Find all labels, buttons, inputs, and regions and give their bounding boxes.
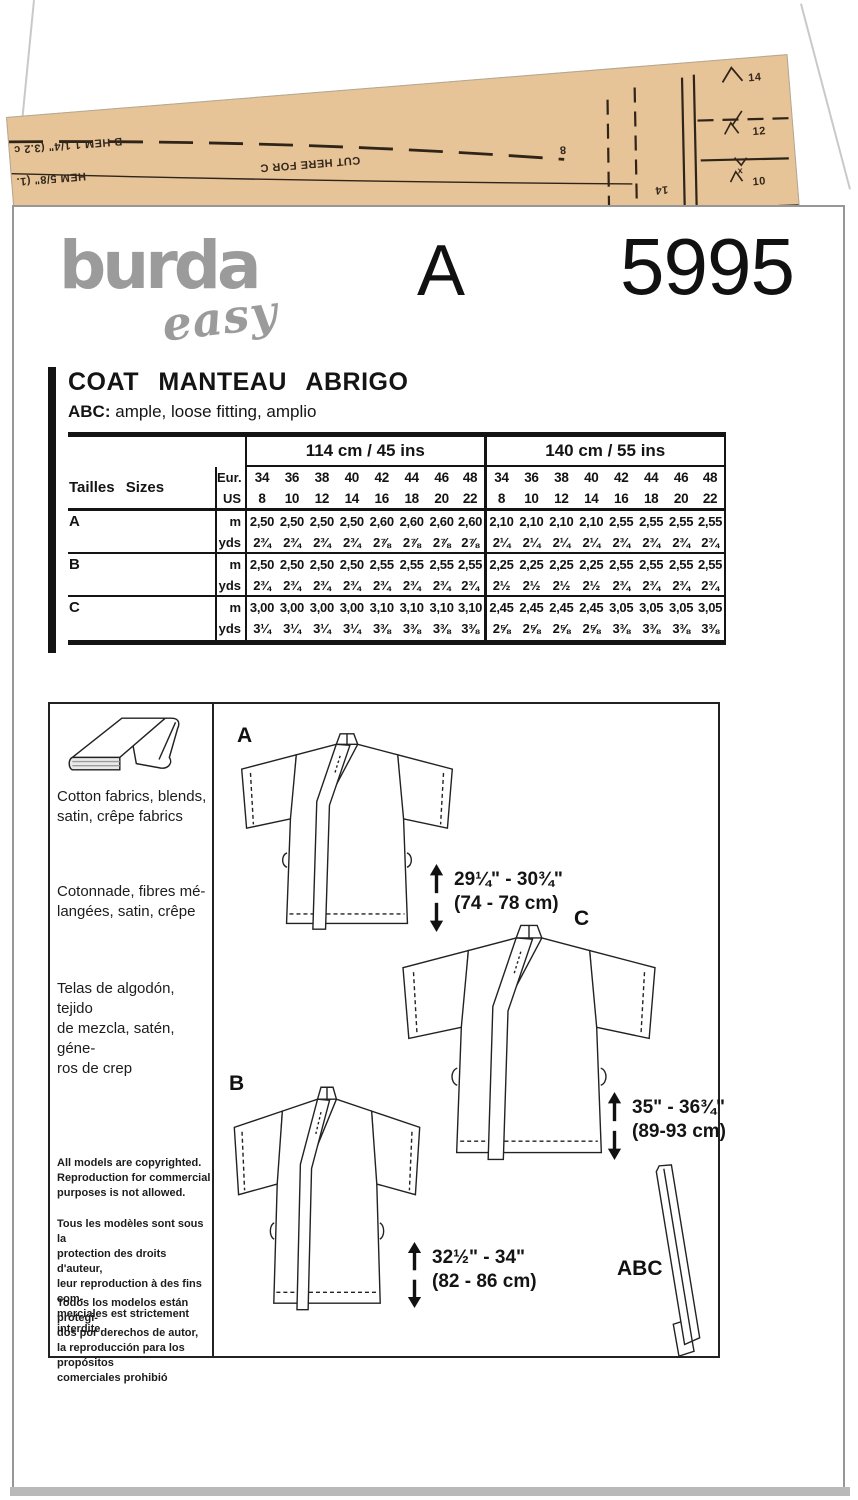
cell-line: 20: [427, 488, 457, 508]
cell-line: 44: [397, 467, 427, 488]
cell-line: 34: [487, 467, 517, 488]
tissue-notch-10: 10: [752, 175, 766, 188]
garment-title: COAT MANTEAU ABRIGO: [68, 368, 408, 397]
fit-views-label: ABC:: [68, 402, 111, 421]
cell-line: 12: [307, 488, 337, 508]
cell-line: 3⅜: [457, 618, 484, 639]
cell-line: 3¼: [277, 618, 307, 639]
yardage-cell: 3,003¼: [247, 597, 277, 640]
yardage-cell: 2,552¾: [606, 554, 636, 595]
size-cell: 4418: [397, 467, 427, 508]
yardage-cell: 2,452⅝: [516, 597, 546, 640]
envelope-front: burda easy A 5995 COAT MANTEAU ABRIGO AB…: [12, 205, 845, 1487]
cell-line: 3,00: [307, 597, 337, 618]
cell-line: 2,10: [487, 511, 517, 532]
cell-line: 2,50: [277, 511, 307, 532]
cell-line: 2¾: [606, 575, 636, 595]
yardage-cell: 2,102¼: [487, 511, 517, 552]
cell-line: m: [217, 511, 241, 532]
cell-line: 2⅝: [546, 618, 576, 639]
cell-line: 2,10: [516, 511, 546, 532]
yardage-cell: 3,053⅜: [636, 597, 666, 640]
cell-line: 2¾: [666, 575, 696, 595]
cell-line: 18: [397, 488, 427, 508]
cell-line: 3¼: [307, 618, 337, 639]
cell-line: 3⅜: [397, 618, 427, 639]
cell-line: 2,55: [696, 511, 724, 532]
cell-line: 22: [457, 488, 484, 508]
size-label-cell: Tailles Sizes Tallas: [68, 467, 217, 508]
belt-line-drawing: [645, 1162, 711, 1360]
table-row: 114 cm / 45 ins140 cm / 55 ins: [68, 437, 726, 467]
table-corner-cell: [68, 437, 247, 467]
cell-line: 3¼: [337, 618, 367, 639]
copyright-text-es: Todos los modelos están protegi- dos por…: [57, 1296, 211, 1386]
table-row: Bmyds2,502¾2,502¾2,502¾2,502¾2,552¾2,552…: [68, 554, 726, 597]
cell-line: 2¾: [337, 575, 367, 595]
cell-line: 2,55: [457, 554, 484, 575]
cell-line: 2¾: [247, 575, 277, 595]
tissue-size-14-rotated: 14: [654, 183, 668, 196]
yardage-cell: 2,552¾: [696, 554, 726, 595]
cell-line: 2¾: [457, 575, 484, 595]
yardage-cell: 3,003¼: [337, 597, 367, 640]
tissue-notch-14: 14: [748, 71, 762, 84]
cell-line: yds: [217, 532, 241, 552]
cell-line: 2¾: [367, 575, 397, 595]
cell-line: 2,50: [307, 511, 337, 532]
size-cell: 4216: [606, 467, 636, 508]
width-header-114: 114 cm / 45 ins: [247, 437, 487, 467]
cell-line: 3,10: [397, 597, 427, 618]
measure-cm-c: (89-93 cm): [632, 1120, 726, 1144]
yardage-cell: 2,552¾: [636, 511, 666, 552]
table-row: Amyds2,502¾2,502¾2,502¾2,502¾2,602⅞2,602…: [68, 511, 726, 554]
cell-line: 36: [277, 467, 307, 488]
cell-line: 2,55: [636, 511, 666, 532]
cell-line: 2,60: [397, 511, 427, 532]
yardage-cell: 2,552¾: [367, 554, 397, 595]
cell-line: 2,25: [576, 554, 606, 575]
yardage-cell: 3,003¼: [277, 597, 307, 640]
yardage-cell: 3,053⅜: [666, 597, 696, 640]
cell-line: 34: [247, 467, 277, 488]
view-label-cell: B: [68, 554, 217, 595]
cell-line: 2¾: [636, 575, 666, 595]
view-label-cell: A: [68, 511, 217, 552]
double-arrow-icon: [406, 1242, 423, 1308]
cell-line: 2,45: [516, 597, 546, 618]
copyright-text-en: All models are copyrighted. Reproduction…: [57, 1156, 211, 1201]
yardage-cell: 2,552¾: [666, 511, 696, 552]
cell-line: 10: [277, 488, 307, 508]
tissue-size-8: 8: [559, 143, 567, 155]
cell-line: 8: [487, 488, 517, 508]
cell-line: 42: [606, 467, 636, 488]
cell-line: 2,55: [696, 554, 724, 575]
fabric-text-fr: Cotonnade, fibres mé- langées, satin, cr…: [57, 882, 209, 922]
tissue-notch-12: 12: [752, 125, 766, 138]
measure-inches-a: 29¼" - 30¾": [454, 868, 563, 892]
yardage-cell: 2,552¾: [457, 554, 487, 595]
cell-line: 2,45: [487, 597, 517, 618]
cell-line: 2,50: [247, 511, 277, 532]
cell-line: 3,10: [457, 597, 484, 618]
yardage-cell: 2,552¾: [606, 511, 636, 552]
yardage-cell: 2,502¾: [337, 554, 367, 595]
yardage-cell: 2,102¼: [546, 511, 576, 552]
size-cell: 4014: [576, 467, 606, 508]
size-cell: 3812: [307, 467, 337, 508]
cell-line: 3⅜: [367, 618, 397, 639]
length-measure-c: 35" - 36¾" (89-93 cm): [606, 1092, 726, 1160]
tissue-x-mark: x: [737, 165, 743, 175]
cell-line: 3,10: [367, 597, 397, 618]
unit-cell: myds: [217, 597, 247, 640]
cell-line: 38: [546, 467, 576, 488]
envelope-flap-edge-right: [800, 3, 851, 189]
cell-line: 3⅜: [696, 618, 724, 639]
cell-line: 2¼: [546, 532, 576, 552]
cell-line: 3⅜: [636, 618, 666, 639]
cell-line: 2¼: [487, 532, 517, 552]
cell-line: 2,55: [666, 511, 696, 532]
cell-line: 2⅝: [487, 618, 517, 639]
cell-line: yds: [217, 618, 241, 639]
size-cell: 4418: [636, 467, 666, 508]
yardage-cell: 3,103⅜: [367, 597, 397, 640]
illustration-box: Cotton fabrics, blends, satin, crêpe fab…: [48, 702, 720, 1358]
measure-text-a: 29¼" - 30¾" (74 - 78 cm): [454, 864, 563, 916]
size-cell: 3610: [516, 467, 546, 508]
cell-line: 14: [337, 488, 367, 508]
cell-line: 48: [457, 467, 484, 488]
cell-line: 2½: [576, 575, 606, 595]
cell-line: 2¾: [696, 575, 724, 595]
yardage-cell: 2,602⅞: [457, 511, 487, 552]
yardage-cell: 2,552¾: [427, 554, 457, 595]
cell-line: m: [217, 554, 241, 575]
cell-line: 3,10: [427, 597, 457, 618]
measure-inches-c: 35" - 36¾": [632, 1096, 726, 1120]
title-accent-bar: [48, 367, 56, 653]
cell-line: 3,05: [696, 597, 724, 618]
yardage-cell: 2,252½: [546, 554, 576, 595]
cell-line: 2,50: [337, 554, 367, 575]
yardage-cell: 2,502¾: [277, 554, 307, 595]
cell-line: 2,55: [427, 554, 457, 575]
cell-line: 3,05: [606, 597, 636, 618]
yardage-cell: 3,103⅜: [457, 597, 487, 640]
cell-line: 2,25: [546, 554, 576, 575]
size-cell: 3610: [277, 467, 307, 508]
cell-line: 2,25: [487, 554, 517, 575]
size-cell: 3812: [546, 467, 576, 508]
cell-line: 42: [367, 467, 397, 488]
yardage-cell: 2,602⅞: [427, 511, 457, 552]
yardage-cell: 2,552¾: [636, 554, 666, 595]
yardage-cell: 3,103⅜: [397, 597, 427, 640]
cell-line: 22: [696, 488, 724, 508]
cell-line: 2¾: [337, 532, 367, 552]
cell-line: 2,50: [307, 554, 337, 575]
cell-line: Eur.: [217, 467, 241, 488]
cell-line: 46: [427, 467, 457, 488]
fabric-text-es: Telas de algodón, tejido de mezcla, saté…: [57, 979, 209, 1079]
cell-line: 2¼: [516, 532, 546, 552]
yardage-table: 114 cm / 45 ins140 cm / 55 insTailles Si…: [68, 432, 726, 645]
cell-line: 10: [516, 488, 546, 508]
cell-line: 3,05: [666, 597, 696, 618]
cell-line: 3,00: [337, 597, 367, 618]
measure-text-b: 32½" - 34" (82 - 86 cm): [432, 1242, 537, 1294]
measure-cm-b: (82 - 86 cm): [432, 1270, 537, 1294]
cell-line: 2,55: [367, 554, 397, 575]
cell-line: 2,50: [277, 554, 307, 575]
cell-line: 2,55: [606, 511, 636, 532]
measure-inches-b: 32½" - 34": [432, 1246, 537, 1270]
view-letter: A: [417, 235, 465, 307]
cell-line: 2,10: [576, 511, 606, 532]
pattern-number: 5995: [594, 227, 794, 307]
fabric-text-en: Cotton fabrics, blends, satin, crêpe fab…: [57, 787, 209, 827]
cell-line: 3,00: [247, 597, 277, 618]
yardage-cell: 2,502¾: [277, 511, 307, 552]
size-cell: 4822: [696, 467, 726, 508]
yardage-cell: 2,252½: [516, 554, 546, 595]
cell-line: 2¾: [666, 532, 696, 552]
cell-line: 20: [666, 488, 696, 508]
yardage-cell: 2,552¾: [397, 554, 427, 595]
yardage-cell: 2,502¾: [247, 511, 277, 552]
coat-drawing-view-b: [224, 1084, 430, 1314]
yardage-cell: 2,502¾: [337, 511, 367, 552]
yardage-cell: 2,452⅝: [546, 597, 576, 640]
yardage-cell: 3,003¼: [307, 597, 337, 640]
cell-line: 2,10: [546, 511, 576, 532]
cell-line: 2⅞: [367, 532, 397, 552]
cell-line: 44: [636, 467, 666, 488]
cell-line: 2½: [487, 575, 517, 595]
double-arrow-icon: [606, 1092, 623, 1160]
envelope-bottom-shadow: [10, 1487, 850, 1496]
cell-line: 2,55: [397, 554, 427, 575]
cell-line: 2¼: [576, 532, 606, 552]
cell-line: 2⅞: [457, 532, 484, 552]
yardage-cell: 2,552¾: [666, 554, 696, 595]
length-measure-b: 32½" - 34" (82 - 86 cm): [406, 1242, 537, 1308]
cell-line: 40: [337, 467, 367, 488]
measure-cm-a: (74 - 78 cm): [454, 892, 563, 916]
view-label-cell: C: [68, 597, 217, 640]
yardage-cell: 2,602⅞: [397, 511, 427, 552]
yardage-cell: 2,552¾: [696, 511, 726, 552]
cell-line: 2¾: [247, 532, 277, 552]
unit-header-cell: Eur.US: [217, 467, 247, 508]
unit-cell: myds: [217, 554, 247, 595]
cell-line: 2,45: [576, 597, 606, 618]
yardage-cell: 2,102¼: [576, 511, 606, 552]
fit-description: ABC: ample, loose fitting, amplio: [68, 402, 317, 422]
yardage-cell: 2,252½: [576, 554, 606, 595]
cell-line: 38: [307, 467, 337, 488]
unit-cell: myds: [217, 511, 247, 552]
yardage-cell: 2,102¼: [516, 511, 546, 552]
yardage-cell: 2,502¾: [307, 511, 337, 552]
size-cell: 348: [247, 467, 277, 508]
cell-line: 2¾: [307, 532, 337, 552]
cell-line: 2,45: [546, 597, 576, 618]
measure-text-c: 35" - 36¾" (89-93 cm): [632, 1092, 726, 1144]
cell-line: 2⅝: [516, 618, 546, 639]
fabric-panel: Cotton fabrics, blends, satin, crêpe fab…: [50, 704, 214, 1356]
cell-line: 2,55: [636, 554, 666, 575]
cell-line: 2⅞: [397, 532, 427, 552]
yardage-cell: 2,252½: [487, 554, 517, 595]
yardage-cell: 3,053⅜: [696, 597, 726, 640]
cell-line: 18: [636, 488, 666, 508]
cell-line: 3,05: [636, 597, 666, 618]
cell-line: 2,50: [247, 554, 277, 575]
cell-line: 2,60: [367, 511, 397, 532]
cell-line: 40: [576, 467, 606, 488]
yardage-cell: 2,452⅝: [487, 597, 517, 640]
cell-line: 2,50: [337, 511, 367, 532]
size-cell: 4014: [337, 467, 367, 508]
yardage-cell: 2,602⅞: [367, 511, 397, 552]
cell-line: 2¾: [636, 532, 666, 552]
cell-line: 2¾: [606, 532, 636, 552]
cell-line: 2¾: [277, 575, 307, 595]
cell-line: 2,25: [516, 554, 546, 575]
cell-line: 3⅜: [427, 618, 457, 639]
cell-line: yds: [217, 575, 241, 595]
cell-line: 12: [546, 488, 576, 508]
yardage-cell: 2,452⅝: [576, 597, 606, 640]
yardage-cell: 3,053⅜: [606, 597, 636, 640]
fit-text: ample, loose fitting, amplio: [115, 402, 316, 421]
table-row: Tailles Sizes TallasEur.US34836103812401…: [68, 467, 726, 511]
cell-line: 2¾: [427, 575, 457, 595]
cell-line: 48: [696, 467, 724, 488]
cell-line: 8: [247, 488, 277, 508]
cell-line: 3¼: [247, 618, 277, 639]
cell-line: 16: [606, 488, 636, 508]
cell-line: 2,55: [666, 554, 696, 575]
cell-line: 2½: [546, 575, 576, 595]
size-cell: 348: [487, 467, 517, 508]
cell-line: 2⅝: [576, 618, 606, 639]
cell-line: 3,00: [277, 597, 307, 618]
table-row: Cmyds3,003¼3,003¼3,003¼3,003¼3,103⅜3,103…: [68, 597, 726, 640]
cell-line: 14: [576, 488, 606, 508]
cell-line: 2,60: [457, 511, 484, 532]
cell-line: US: [217, 488, 241, 508]
width-header-140: 140 cm / 55 ins: [487, 437, 727, 467]
pattern-envelope-back: B HEM 1 1/4" (3.2 c HEM 5/8" (1. CUT HER…: [0, 0, 858, 1500]
size-cell: 4620: [666, 467, 696, 508]
yardage-cell: 2,502¾: [307, 554, 337, 595]
cell-line: 2¾: [696, 532, 724, 552]
cell-line: 46: [666, 467, 696, 488]
size-cell: 4216: [367, 467, 397, 508]
cell-line: 2¾: [277, 532, 307, 552]
cell-line: 2,55: [606, 554, 636, 575]
yardage-cell: 3,103⅜: [427, 597, 457, 640]
cell-line: 3⅜: [606, 618, 636, 639]
cell-line: 16: [367, 488, 397, 508]
cell-line: 36: [516, 467, 546, 488]
cell-line: 2,60: [427, 511, 457, 532]
cell-line: 3⅜: [666, 618, 696, 639]
cell-line: 2¾: [397, 575, 427, 595]
cell-line: 2½: [516, 575, 546, 595]
easy-logo-script: easy: [160, 288, 280, 348]
cell-line: 2⅞: [427, 532, 457, 552]
cell-line: m: [217, 597, 241, 618]
size-cell: 4822: [457, 467, 487, 508]
cell-line: 2¾: [307, 575, 337, 595]
yardage-cell: 2,502¾: [247, 554, 277, 595]
size-cell: 4620: [427, 467, 457, 508]
fabric-bolt-icon: [62, 712, 190, 776]
